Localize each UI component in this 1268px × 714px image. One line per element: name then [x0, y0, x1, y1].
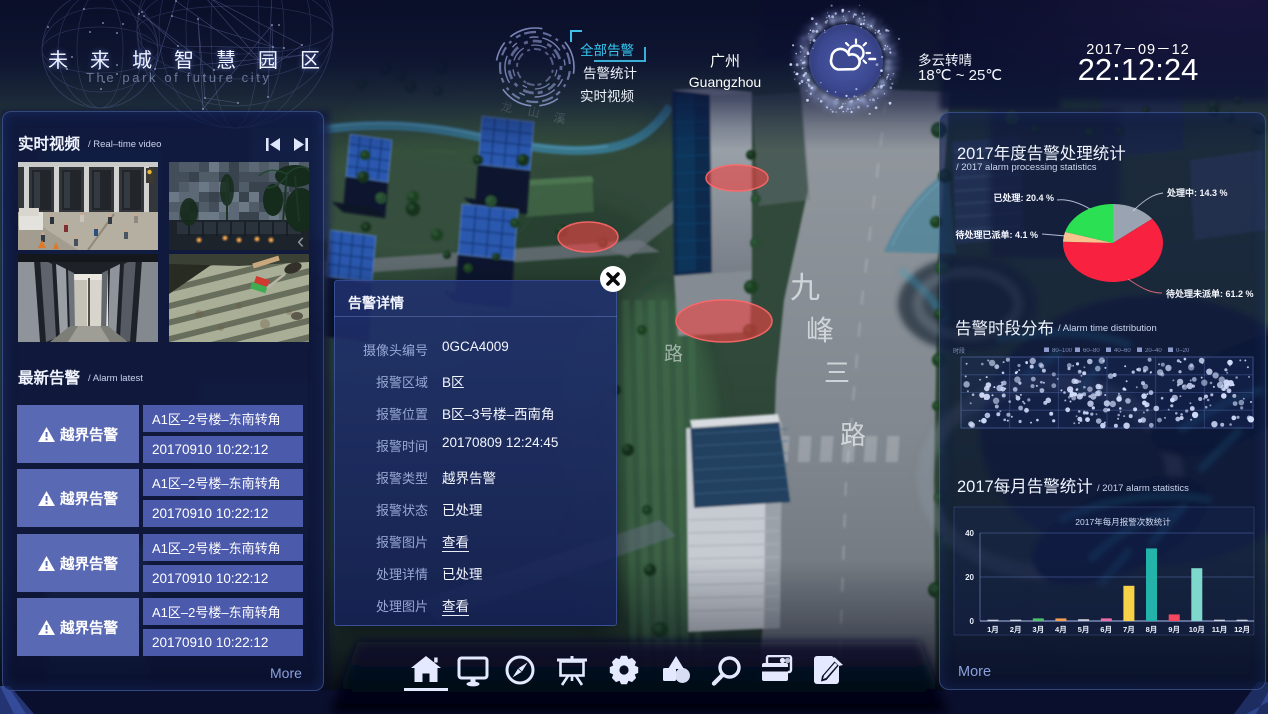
- svg-text:80–100: 80–100: [1052, 348, 1073, 354]
- svg-text:10月: 10月: [1189, 625, 1205, 634]
- svg-text:20: 20: [965, 573, 974, 582]
- svg-text:2月: 2月: [1010, 625, 1022, 634]
- svg-text:1月: 1月: [987, 625, 999, 634]
- svg-text:8月: 8月: [1146, 625, 1158, 634]
- svg-text:40–60: 40–60: [1114, 348, 1131, 354]
- svg-text:3月: 3月: [1032, 625, 1044, 634]
- svg-text:6月: 6月: [1100, 625, 1112, 634]
- svg-text:2017年每月报警次数统计: 2017年每月报警次数统计: [1075, 517, 1171, 527]
- svg-text:60–80: 60–80: [1083, 348, 1100, 354]
- svg-text:0: 0: [970, 617, 975, 626]
- svg-text:9月: 9月: [1168, 625, 1180, 634]
- svg-text:路: 路: [840, 420, 866, 450]
- svg-text:5月: 5月: [1078, 625, 1090, 634]
- svg-text:九: 九: [790, 272, 820, 305]
- svg-text:4月: 4月: [1055, 625, 1067, 634]
- svg-text:12月: 12月: [1234, 625, 1250, 634]
- svg-text:0–20: 0–20: [1176, 348, 1190, 354]
- svg-text:路: 路: [664, 343, 683, 365]
- svg-text:40: 40: [965, 529, 974, 538]
- svg-text:时段: 时段: [953, 347, 965, 355]
- svg-text:11月: 11月: [1212, 625, 1228, 634]
- svg-text:20–40: 20–40: [1145, 348, 1162, 354]
- svg-text:峰: 峰: [806, 315, 834, 346]
- svg-text:三: 三: [824, 358, 850, 388]
- svg-text:7月: 7月: [1123, 625, 1135, 634]
